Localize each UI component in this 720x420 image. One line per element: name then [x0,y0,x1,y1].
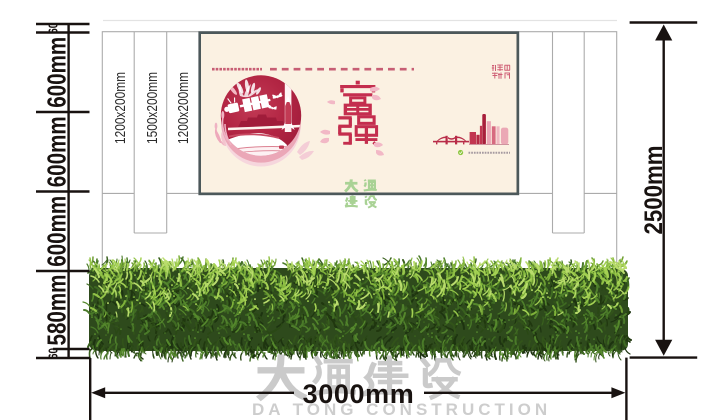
svg-text:600mm: 600mm [42,37,72,108]
svg-text:1200x200mm: 1200x200mm [113,72,129,144]
svg-text:1500x200mm: 1500x200mm [145,72,161,144]
svg-text:1200x200mm: 1200x200mm [176,72,192,144]
svg-text:600mm: 600mm [42,196,72,267]
svg-text:60: 60 [46,23,61,34]
svg-text:600mm: 600mm [42,116,72,187]
svg-text:2500mm: 2500mm [640,146,668,235]
svg-text:60: 60 [46,348,61,359]
svg-text:3000mm: 3000mm [303,379,415,409]
svg-text:580mm: 580mm [42,275,72,346]
